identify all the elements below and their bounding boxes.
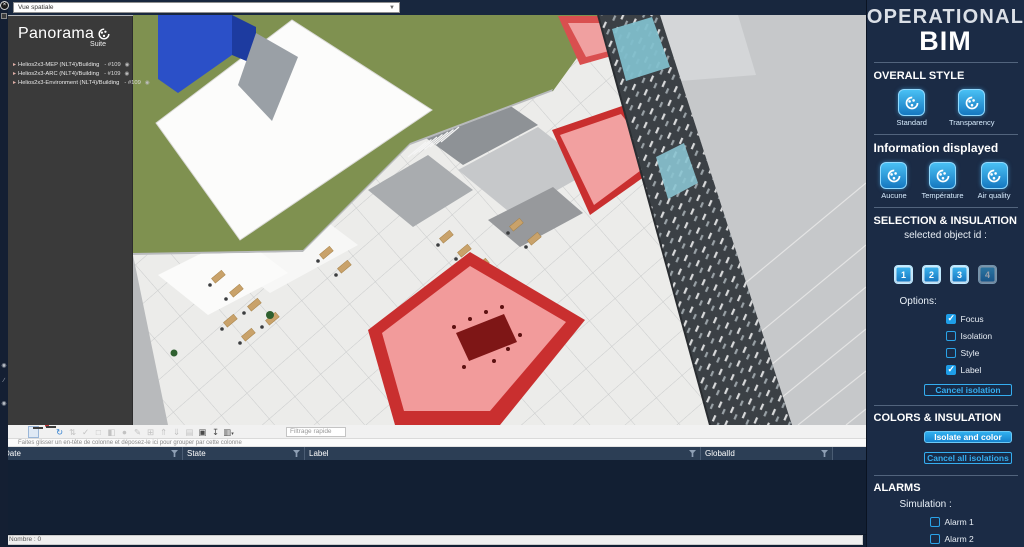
tree-item-suffix: - #109 — [104, 61, 120, 70]
arrow-up-icon[interactable]: ⇑ — [158, 426, 169, 438]
style-transparency-button[interactable] — [958, 89, 985, 116]
model-tree-panel: Panorama Suite ▸ Helios2x3-MEP (NLT4)/Bu… — [8, 16, 133, 425]
column-filter-icon[interactable] — [821, 450, 828, 457]
cancel-all-isolations-button[interactable]: Cancel all isolations — [924, 452, 1012, 464]
visibility-icon[interactable]: ◉ — [145, 79, 150, 88]
divider — [874, 207, 1018, 208]
window-icon[interactable] — [1, 13, 7, 19]
layout-icon[interactable]: ▤ — [184, 426, 195, 438]
tree-expand-icon[interactable]: ▸ — [13, 79, 16, 88]
visibility-icon[interactable]: ◉ — [125, 70, 130, 79]
tree-item[interactable]: ▸ Helios2x3-ARC (NLT4)/Building - #109 ◉ — [13, 70, 132, 79]
checkbox-isolation-label: Isolation — [961, 331, 993, 341]
checkbox-focus[interactable] — [946, 314, 956, 324]
grid-icon[interactable]: ⊞ — [145, 426, 156, 438]
tree-expand-icon[interactable]: ▸ — [13, 61, 16, 70]
alarm-bell-icon[interactable] — [28, 426, 39, 438]
close-icon[interactable]: × — [0, 1, 9, 10]
swirl-icon — [935, 168, 951, 184]
viewport-topbar: Vue spatiale ▼ — [8, 0, 866, 15]
checkbox-alarm-2-label: Alarm 2 — [945, 534, 974, 544]
selection-heading: SELECTION & INSULATION — [874, 215, 1018, 227]
colors-heading: COLORS & INSULATION — [874, 412, 1018, 424]
column-filter-icon[interactable] — [293, 450, 300, 457]
style-standard-label: Standard — [896, 118, 926, 127]
divider — [874, 405, 1018, 406]
column-chooser-icon[interactable]: ▥▾ — [223, 426, 234, 438]
view-selector[interactable]: Vue spatiale ▼ — [13, 2, 400, 13]
column-header-label: Label — [309, 449, 329, 458]
options-label: Options: — [874, 296, 1018, 307]
view-selector-value: Vue spatiale — [18, 4, 54, 11]
copy-icon[interactable]: ▣ — [197, 426, 208, 438]
export-icon[interactable]: ↧ — [210, 426, 221, 438]
tree-item-label: Helios2x3-ARC (NLT4)/Building — [18, 70, 99, 79]
alarms-heading: ALARMS — [874, 482, 1018, 494]
split-icon[interactable]: ◧ — [106, 426, 117, 438]
object-button-1[interactable]: 1 — [894, 265, 913, 284]
style-standard-button[interactable] — [898, 89, 925, 116]
application-window: ◉ ∕ ◉ × Vue spatiale ▼ — [0, 0, 1024, 547]
checkbox-isolation[interactable] — [946, 331, 956, 341]
brand-logo: Panorama Suite — [8, 16, 132, 48]
checkbox-label[interactable] — [946, 365, 956, 375]
tree-item-label: Helios2x3-MEP (NLT4)/Building — [18, 61, 99, 70]
tree-expand-icon[interactable]: ▸ — [13, 70, 16, 79]
brand-name: Panorama — [18, 25, 94, 43]
quick-filter-input[interactable] — [286, 427, 346, 437]
alarm-bell-off-icon[interactable] — [41, 426, 52, 438]
info-air-quality-label: Air quality — [978, 191, 1011, 200]
tree-item-label: Helios2x3-Environment (NLT4)/Building — [18, 79, 119, 88]
chevron-down-icon: ▼ — [389, 5, 395, 11]
column-filter-icon[interactable] — [689, 450, 696, 457]
column-header-label[interactable]: Label — [305, 447, 701, 460]
info-air-quality-button[interactable] — [981, 162, 1008, 189]
object-button-4[interactable]: 4 — [978, 265, 997, 284]
tree-item[interactable]: ▸ Helios2x3-MEP (NLT4)/Building - #109 ◉ — [13, 61, 132, 70]
swirl-icon — [904, 95, 920, 111]
divider — [874, 62, 1018, 63]
checkbox-alarm-1[interactable] — [930, 517, 940, 527]
swirl-icon — [986, 168, 1002, 184]
refresh-icon[interactable]: ↻ — [54, 426, 65, 438]
alarms-grid-panel: ↻ ⇅ ✓ □ ◧ ● ✎ ⊞ ⇑ ⇓ ▤ ▣ ↧ ▥▾ Faites glis… — [0, 425, 866, 547]
column-header-globalid[interactable]: GlobalId — [701, 447, 833, 460]
info-temperature-label: Température — [921, 191, 963, 200]
panel-title-line2: BIM — [919, 26, 972, 57]
clear-filter-icon[interactable] — [249, 426, 260, 438]
column-filter-icon[interactable] — [171, 450, 178, 457]
column-filler — [833, 447, 866, 460]
left-window-strip: ◉ ∕ ◉ — [0, 0, 8, 547]
simulation-label: Simulation : — [874, 499, 1018, 510]
visibility-icon[interactable]: ◉ — [125, 61, 130, 70]
viewport: Vue spatiale ▼ — [8, 0, 866, 425]
column-header-date[interactable]: Date — [0, 447, 183, 460]
swirl-icon — [97, 27, 111, 41]
swirl-icon — [886, 168, 902, 184]
grid-header-row: Date State Label GlobalId — [0, 447, 866, 460]
cancel-isolation-button[interactable]: Cancel isolation — [924, 384, 1012, 396]
model-3d-view[interactable] — [8, 15, 866, 425]
object-button-2[interactable]: 2 — [922, 265, 941, 284]
user-icon[interactable]: ⇅ — [67, 426, 78, 438]
group-by-hint: Faites glisser un en-tête de colonne et … — [0, 439, 866, 447]
target-icon[interactable]: ◉ — [0, 362, 8, 369]
swirl-icon — [964, 95, 980, 111]
checkbox-label-label: Label — [961, 365, 982, 375]
divider — [874, 134, 1018, 135]
information-displayed-heading: Information displayed — [874, 141, 1018, 155]
info-icon[interactable]: ◉ — [0, 400, 8, 407]
grid-footer-count: Nombre : 0 — [3, 535, 863, 545]
column-header-label: State — [187, 449, 206, 458]
check-icon[interactable]: ✓ — [80, 426, 91, 438]
overall-style-heading: OVERALL STYLE — [874, 70, 1018, 82]
info-aucune-button[interactable] — [880, 162, 907, 189]
isolate-and-color-button[interactable]: Isolate and color — [924, 431, 1012, 443]
filter-icon[interactable] — [236, 426, 247, 438]
model-tree: ▸ Helios2x3-MEP (NLT4)/Building - #109 ◉… — [8, 61, 132, 88]
checkbox-style-label: Style — [961, 348, 980, 358]
object-button-3[interactable]: 3 — [950, 265, 969, 284]
box-icon[interactable]: □ — [93, 426, 104, 438]
checkbox-alarm-1-label: Alarm 1 — [945, 517, 974, 527]
edit-icon[interactable]: ✎ — [132, 426, 143, 438]
tree-item-suffix: - #109 — [104, 70, 120, 79]
tree-item-suffix: - #109 — [124, 79, 140, 88]
checkbox-style[interactable] — [946, 348, 956, 358]
record-icon[interactable]: ● — [119, 426, 130, 438]
style-transparency-label: Transparency — [949, 118, 995, 127]
arrow-down-icon[interactable]: ⇓ — [171, 426, 182, 438]
pen-icon[interactable]: ∕ — [0, 378, 8, 384]
checkbox-focus-label: Focus — [961, 314, 984, 324]
column-header-label: GlobalId — [705, 449, 735, 458]
tree-item[interactable]: ▸ Helios2x3-Environment (NLT4)/Building … — [13, 79, 132, 88]
grid-toolbar: ↻ ⇅ ✓ □ ◧ ● ✎ ⊞ ⇑ ⇓ ▤ ▣ ↧ ▥▾ — [0, 425, 866, 439]
info-temperature-button[interactable] — [929, 162, 956, 189]
checkbox-alarm-2[interactable] — [930, 534, 940, 544]
divider — [874, 475, 1018, 476]
column-header-state[interactable]: State — [183, 447, 305, 460]
grid-body-empty[interactable] — [0, 460, 866, 535]
selected-object-id-label: selected object id : — [904, 230, 987, 241]
info-aucune-label: Aucune — [881, 191, 906, 200]
operational-bim-panel: OPERATIONAL BIM OVERALL STYLE Standard — [866, 0, 1024, 547]
